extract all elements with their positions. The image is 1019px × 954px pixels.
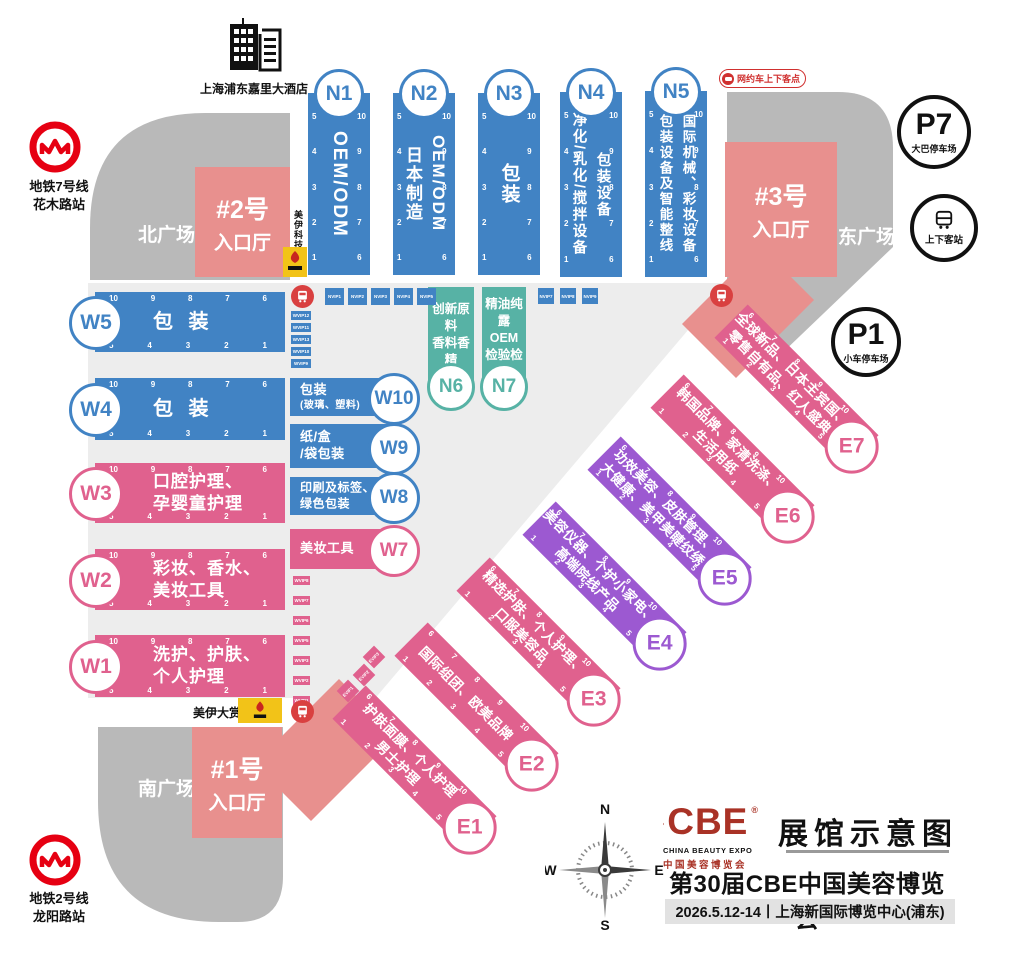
entrance-hall-3: #3号 入口厅 bbox=[725, 142, 837, 277]
vip-box: NVIP7 bbox=[538, 288, 554, 304]
entrance-label: 入口厅 bbox=[214, 228, 271, 255]
hall-badge: E5 bbox=[698, 551, 752, 605]
east-plaza-label: 东广场 bbox=[838, 222, 895, 249]
booth-number: 1 bbox=[263, 341, 267, 350]
map-title: 展馆示意图 bbox=[778, 809, 958, 853]
booth-number: 9 bbox=[151, 294, 155, 303]
cbe-flower-icon bbox=[663, 805, 664, 843]
booth-number: 9 bbox=[151, 380, 155, 389]
cbe-logo-en: CHINA BEAUTY EXPO bbox=[663, 846, 758, 855]
vip-box: WVIP10 bbox=[291, 347, 311, 356]
parking-p7: P7 大巴停车场 bbox=[897, 95, 971, 169]
booth-number: 4 bbox=[147, 599, 151, 608]
nvip-row-right: NVIP7NVIP8NVIP9 bbox=[538, 288, 598, 304]
entrance-number: #3号 bbox=[755, 177, 808, 213]
sponsor-logo bbox=[283, 247, 307, 277]
vip-box: WVIP5 bbox=[293, 636, 310, 645]
booth-number: 1 bbox=[263, 599, 267, 608]
parking-code: P7 bbox=[916, 110, 953, 140]
hall-badge: N5 bbox=[651, 67, 701, 117]
car-icon bbox=[722, 73, 734, 85]
vip-box: NVIP2 bbox=[348, 288, 367, 305]
bus-icon bbox=[291, 285, 314, 308]
wvip-stack-blue: WVIP12WVIP11WVIP13WVIP10WVIP9 bbox=[291, 311, 311, 371]
hall-label: 纸/盒/袋包装 bbox=[300, 429, 345, 463]
south-plaza-label: 南广场 bbox=[138, 774, 195, 801]
hall-W2: 109876 54321 彩妆、香水、美妆工具 W2 bbox=[95, 549, 285, 610]
nvip-row-left: NVIP1NVIP2NVIP3NVIP4NVIP5 bbox=[325, 288, 436, 305]
booth-number: 2 bbox=[224, 341, 228, 350]
hall-label: 彩妆、香水、美妆工具 bbox=[153, 557, 261, 601]
booth-number: 3 bbox=[186, 341, 190, 350]
hall-badge: W1 bbox=[69, 640, 123, 694]
booth-number: 4 bbox=[147, 686, 151, 695]
hall-badge: N6 bbox=[427, 363, 475, 411]
cbe-logo-text: CBE bbox=[667, 805, 748, 838]
hall-W9: 纸/盒/袋包装 W9 bbox=[290, 424, 398, 468]
compass-s: S bbox=[600, 917, 609, 930]
hall-badge: N4 bbox=[566, 68, 616, 118]
booth-number: 4 bbox=[147, 341, 151, 350]
vip-box: WVIP12 bbox=[291, 311, 311, 320]
ride-hailing-label: 网约车上下客点 bbox=[737, 72, 800, 85]
cbe-logo: CBE ® CHINA BEAUTY EXPO 中国美容博览会 bbox=[663, 805, 758, 871]
bus-stop: 上下客站 bbox=[910, 194, 978, 262]
vip-box: WVIP11 bbox=[291, 323, 311, 332]
vip-box: NVIP8 bbox=[560, 288, 576, 304]
booth-number: 3 bbox=[186, 429, 190, 438]
vip-box: WVIP7 bbox=[293, 596, 310, 605]
hall-W5: 109876 54321 包 装 W5 bbox=[95, 292, 285, 352]
vip-box: WVIP13 bbox=[291, 335, 311, 344]
vip-box: NVIP9 bbox=[582, 288, 598, 304]
hall-N7: 精油纯露OEM检验检测 N7 bbox=[482, 287, 526, 385]
hall-badge: N1 bbox=[314, 69, 364, 119]
hall-label: 包装 bbox=[478, 109, 540, 259]
booth-number: 4 bbox=[147, 512, 151, 521]
hall-badge: W9 bbox=[368, 423, 420, 475]
metro-logo-icon bbox=[28, 833, 82, 887]
hall-W10: 包装(玻璃、塑料) W10 bbox=[290, 378, 398, 416]
vip-box: WVIP8 bbox=[293, 576, 310, 585]
hall-label: 国际机械、彩妆设备包装设备及智能整线 bbox=[645, 107, 707, 261]
hall-badge: N2 bbox=[399, 69, 449, 119]
title-underline bbox=[786, 850, 949, 853]
hall-label: 印刷及标签、绿色包装 bbox=[300, 480, 375, 511]
vip-box: WVIP9 bbox=[291, 359, 311, 368]
hall-badge: W8 bbox=[368, 472, 420, 524]
hall-badge: W3 bbox=[69, 467, 123, 521]
vip-box: WVIP2 bbox=[293, 676, 310, 685]
booth-number: 6 bbox=[263, 551, 267, 560]
ride-hailing-point: 网约车上下客点 bbox=[719, 69, 806, 88]
hall-badge: W2 bbox=[69, 554, 123, 608]
hall-label: 包 装 bbox=[153, 396, 214, 422]
hall-badge: N3 bbox=[484, 69, 534, 119]
parking-p1: P1 小车停车场 bbox=[831, 307, 901, 377]
hall-badge: E6 bbox=[761, 489, 815, 543]
wvip-stack-pink: WVIP8WVIP7WVIP6WVIP5WVIP3WVIP2WVIP1 bbox=[293, 576, 310, 716]
date-venue-bar: 2026.5.12-14丨上海新国际博览中心(浦东) bbox=[665, 899, 955, 924]
vip-box: NVIP3 bbox=[371, 288, 390, 305]
sponsor-flame-icon bbox=[287, 250, 303, 274]
compass-w: W bbox=[545, 862, 557, 878]
registered-mark: ® bbox=[751, 805, 758, 815]
bus-front-icon bbox=[933, 210, 955, 230]
hall-N3: 54321 109876 包装 N3 bbox=[478, 93, 540, 275]
hall-label: 创新原料香料香精 bbox=[428, 301, 474, 369]
sponsor-logo bbox=[238, 698, 282, 723]
hall-N5: 54321 109876 国际机械、彩妆设备包装设备及智能整线 N5 bbox=[645, 91, 707, 277]
booth-number: 6 bbox=[263, 465, 267, 474]
vip-box: WVIP6 bbox=[293, 616, 310, 625]
compass-n: N bbox=[600, 801, 610, 817]
hall-badge: E1 bbox=[443, 800, 497, 854]
entrance-number: #1号 bbox=[211, 750, 264, 786]
hall-badge: E4 bbox=[633, 616, 687, 670]
sponsor-flame-icon bbox=[253, 700, 267, 722]
hall-badge: E3 bbox=[567, 672, 621, 726]
hall-W1: 109876 54321 洗护、护肤、个人护理 W1 bbox=[95, 635, 285, 697]
hall-badge: W4 bbox=[69, 383, 123, 437]
hall-W8: 印刷及标签、绿色包装 W8 bbox=[290, 477, 398, 515]
booth-number: 6 bbox=[263, 380, 267, 389]
hall-W4: 109876 54321 包 装 W4 bbox=[95, 378, 285, 440]
hall-N4: 54321 109876 包装设备净化/乳化/搅拌设备 N4 bbox=[560, 92, 622, 277]
parking-code: P1 bbox=[848, 320, 885, 350]
compass-icon: N S W E bbox=[545, 800, 665, 930]
hall-label: 美妆工具 bbox=[300, 541, 354, 558]
hotel-icon bbox=[214, 18, 286, 76]
entrance-label: 入口厅 bbox=[208, 788, 265, 815]
booth-number: 8 bbox=[188, 380, 192, 389]
hall-N2: 54321 109876 OEM/ODM日本制造 N2 bbox=[393, 93, 455, 275]
sponsor-tech-label: 美伊科技 bbox=[292, 210, 305, 250]
venue-map: 上海浦东嘉里大酒店 地铁7号线 花木路站 地铁2号线 龙阳路站 北广场 东广场 … bbox=[0, 0, 1019, 954]
hall-label: 洗护、护肤、个人护理 bbox=[153, 644, 261, 688]
hall-N1: 54321 109876 OEM/ODM N1 bbox=[308, 93, 370, 275]
vip-box: NVIP1 bbox=[325, 288, 344, 305]
hall-label: 包装(玻璃、塑料) bbox=[300, 382, 360, 412]
metro-logo-icon bbox=[28, 120, 82, 174]
booth-number: 6 bbox=[263, 294, 267, 303]
hall-label: OEM/ODM日本制造 bbox=[393, 109, 455, 259]
hall-label: 口腔护理、孕婴童护理 bbox=[153, 471, 243, 515]
hall-badge: N7 bbox=[480, 363, 528, 411]
hall-badge: W10 bbox=[368, 373, 420, 425]
bus-icon bbox=[291, 700, 314, 723]
parking-label: 小车停车场 bbox=[843, 352, 888, 365]
hall-W7: 美妆工具 W7 bbox=[290, 529, 398, 569]
booth-number: 7 bbox=[225, 294, 229, 303]
entrance-label: 入口厅 bbox=[752, 215, 809, 242]
parking-label: 大巴停车场 bbox=[911, 142, 956, 155]
bus-icon bbox=[710, 284, 733, 307]
booth-number: 4 bbox=[147, 429, 151, 438]
hall-label: 包 装 bbox=[153, 309, 214, 335]
booth-number: 8 bbox=[188, 294, 192, 303]
vip-box: NVIP4 bbox=[394, 288, 413, 305]
booth-number: 1 bbox=[263, 686, 267, 695]
booth-number: 7 bbox=[225, 380, 229, 389]
booth-number: 1 bbox=[263, 512, 267, 521]
hall-label: 包装设备净化/乳化/搅拌设备 bbox=[560, 108, 622, 261]
booth-number: 6 bbox=[263, 637, 267, 646]
sponsor-award-label: 美伊大赏 bbox=[193, 704, 241, 721]
entrance-number: #2号 bbox=[216, 190, 269, 226]
vip-box: NVIP5 bbox=[417, 288, 436, 305]
north-plaza-label: 北广场 bbox=[138, 220, 195, 247]
hall-badge: E7 bbox=[825, 419, 879, 473]
hall-badge: E2 bbox=[505, 737, 559, 791]
vip-box: WVIP3 bbox=[293, 656, 310, 665]
hall-badge: W7 bbox=[368, 525, 420, 577]
booth-number: 1 bbox=[263, 429, 267, 438]
entrance-hall-2: #2号 入口厅 bbox=[195, 167, 290, 277]
bus-stop-label: 上下客站 bbox=[925, 232, 963, 246]
entrance-hall-1: #1号 入口厅 bbox=[192, 727, 282, 838]
hall-W3: 109876 54321 口腔护理、孕婴童护理 W3 bbox=[95, 463, 285, 523]
booth-number: 2 bbox=[224, 429, 228, 438]
hall-badge: W5 bbox=[69, 296, 123, 350]
hall-label: OEM/ODM bbox=[308, 109, 370, 259]
